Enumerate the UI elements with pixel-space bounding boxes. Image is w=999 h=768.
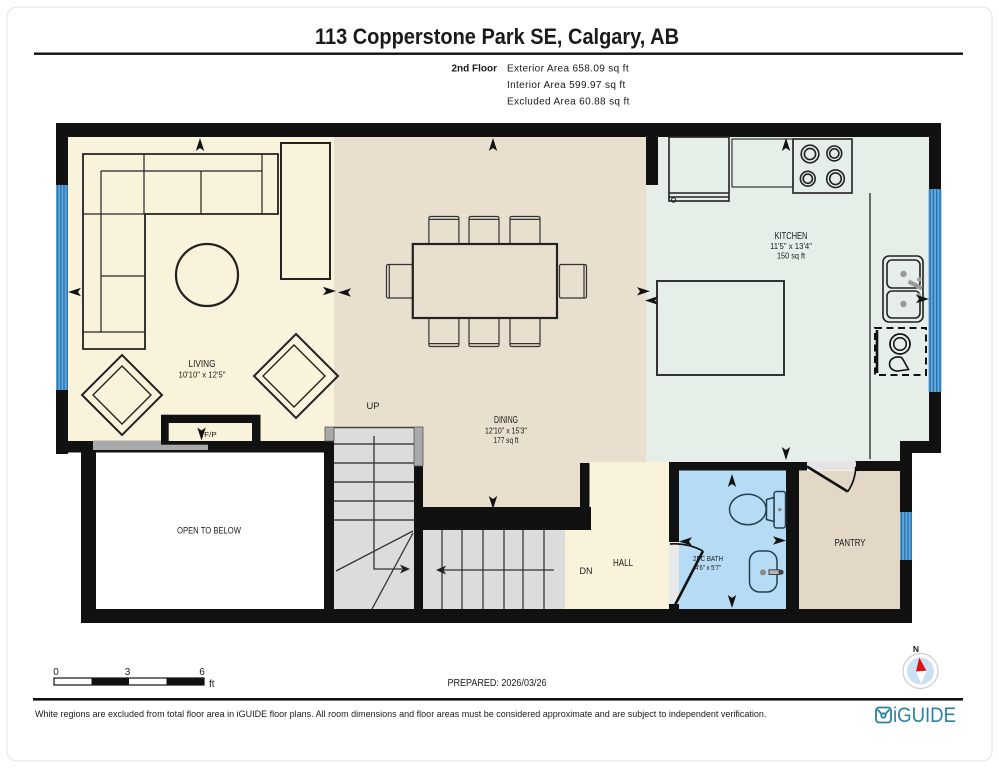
svg-text:DN: DN [580, 566, 593, 577]
svg-text:10'10" x 12'5": 10'10" x 12'5" [179, 370, 226, 380]
svg-text:Interior Area 599.97 sq ft: Interior Area 599.97 sq ft [507, 80, 626, 91]
svg-text:UP: UP [367, 401, 380, 412]
svg-text:N: N [913, 644, 919, 654]
svg-text:2PC BATH: 2PC BATH [693, 554, 723, 563]
svg-text:PANTRY: PANTRY [835, 538, 866, 549]
svg-text:OPEN TO BELOW: OPEN TO BELOW [177, 526, 241, 537]
svg-text:F/P: F/P [204, 430, 217, 439]
svg-text:11'5" x 13'4": 11'5" x 13'4" [770, 242, 812, 251]
svg-text:HALL: HALL [613, 558, 633, 569]
svg-text:DINING: DINING [494, 415, 518, 426]
svg-text:0: 0 [53, 667, 59, 678]
svg-text:113 Copperstone Park SE, Calga: 113 Copperstone Park SE, Calgary, AB [315, 24, 679, 49]
svg-text:White regions are excluded fro: White regions are excluded from total fl… [35, 709, 766, 719]
svg-text:LIVING: LIVING [189, 359, 216, 370]
svg-text:Exterior Area 658.09 sq ft: Exterior Area 658.09 sq ft [507, 64, 629, 75]
svg-text:150 sq ft: 150 sq ft [777, 252, 806, 261]
svg-text:12'10" x 15'3": 12'10" x 15'3" [485, 427, 527, 436]
svg-text:4'6" x 5'7": 4'6" x 5'7" [695, 563, 721, 572]
svg-text:iGUIDE: iGUIDE [893, 704, 956, 727]
svg-text:177 sq ft: 177 sq ft [494, 436, 520, 445]
svg-text:PREPARED: 2026/03/26: PREPARED: 2026/03/26 [448, 678, 547, 689]
svg-text:KITCHEN: KITCHEN [775, 231, 808, 242]
svg-text:Excluded Area 60.88 sq ft: Excluded Area 60.88 sq ft [507, 97, 630, 108]
svg-text:2nd Floor: 2nd Floor [451, 64, 497, 75]
svg-text:3: 3 [125, 667, 131, 678]
svg-text:6: 6 [199, 667, 205, 678]
svg-text:ft: ft [209, 679, 215, 690]
